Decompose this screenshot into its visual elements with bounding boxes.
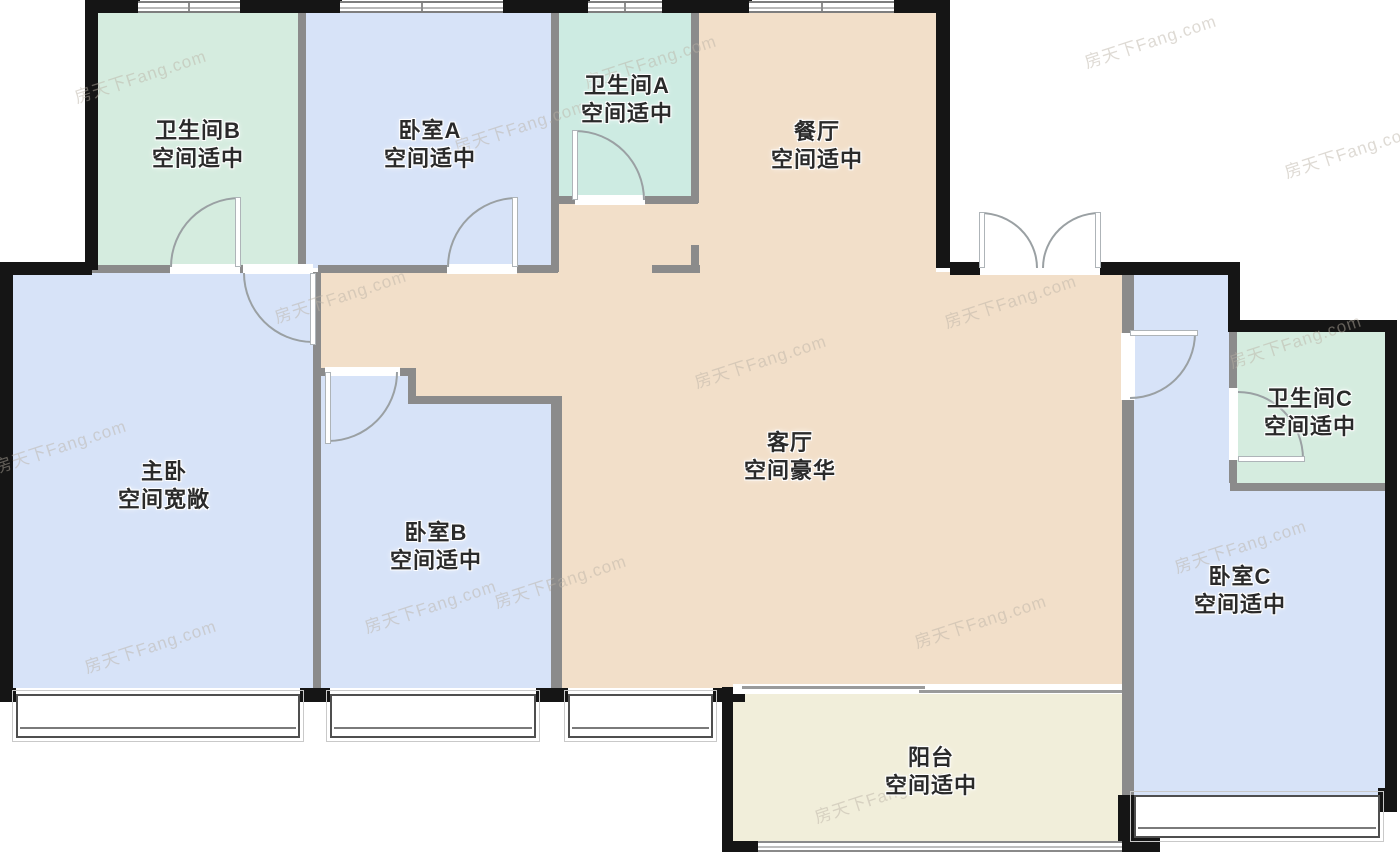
master-bedroom-label: 主卧空间宽敞 [118, 458, 210, 514]
master-bedroom-label-line1: 主卧 [118, 458, 210, 486]
floor-plan: 房天下Fang.com房天下Fang.com房天下Fang.com房天下Fang… [0, 0, 1400, 857]
balcony-slider-panel-right [919, 690, 1122, 693]
interior-wall [318, 265, 447, 273]
exterior-wall [722, 841, 758, 852]
bathroom-b-label-line1: 卫生间B [152, 117, 244, 145]
dining-window [749, 1, 894, 13]
interior-wall [691, 245, 699, 272]
bedroom-c-label-line1: 卧室C [1194, 563, 1286, 591]
bedroom-b-label: 卧室B空间适中 [390, 519, 482, 575]
interior-wall [551, 396, 562, 690]
window-tick [188, 3, 190, 11]
exterior-wall [85, 0, 140, 13]
window-tick [624, 3, 626, 11]
living-room-label-line1: 客厅 [744, 429, 836, 457]
master-bedroom-window [16, 694, 300, 738]
window-sash-line [334, 727, 532, 729]
bathroom-b-door-leaf [235, 197, 241, 267]
bathroom-a-label: 卫生间A空间适中 [581, 72, 673, 128]
interior-wall [691, 10, 699, 203]
balcony-label-line1: 阳台 [885, 744, 977, 772]
dining-room-label-line2: 空间适中 [771, 146, 863, 174]
watermark: 房天下Fang.com [1281, 117, 1400, 183]
bathroom-a-door-leaf [572, 130, 578, 200]
exterior-wall [950, 262, 980, 275]
bedroom-c-label-line2: 空间适中 [1194, 591, 1286, 619]
window-sash-line [572, 727, 709, 729]
window-tick [421, 3, 423, 11]
bedroom-b-window [330, 694, 536, 738]
exterior-wall [1378, 788, 1397, 812]
interior-wall [408, 396, 558, 404]
interior-wall [92, 265, 170, 273]
balcony-label: 阳台空间适中 [885, 744, 977, 800]
bathroom-c-door-threshold [1229, 388, 1238, 460]
bathroom-b-label: 卫生间B空间适中 [152, 117, 244, 173]
exterior-wall [1100, 262, 1240, 275]
bathroom-a-label-line1: 卫生间A [581, 72, 673, 100]
living-room-label-line2: 空间豪华 [744, 457, 836, 485]
exterior-wall [0, 688, 16, 702]
bedroom-b-label-line2: 空间适中 [390, 547, 482, 575]
bathroom-b-window [138, 1, 240, 13]
bedroom-a-label: 卧室A空间适中 [384, 117, 476, 173]
bathroom-c-label: 卫生间C空间适中 [1264, 385, 1356, 441]
window-tick [821, 3, 823, 11]
hall-window [568, 694, 713, 738]
master-bedroom-door-leaf [310, 273, 316, 345]
entry-door-right-leaf [1095, 212, 1101, 268]
exterior-wall [0, 262, 13, 702]
bathroom-c-door-leaf [1238, 456, 1305, 462]
interior-wall [1122, 275, 1134, 333]
bedroom-c-door-leaf [1130, 330, 1198, 336]
master-bedroom-label-line2: 空间宽敞 [118, 486, 210, 514]
bathroom-a-window [588, 1, 662, 13]
exterior-wall [300, 688, 330, 702]
living-room-label: 客厅空间豪华 [744, 429, 836, 485]
interior-wall [298, 10, 306, 272]
interior-wall [1229, 332, 1237, 388]
bathroom-c-label-line2: 空间适中 [1264, 413, 1356, 441]
balcony-railing [758, 841, 1122, 852]
bedroom-b-door-leaf [325, 372, 331, 444]
bedroom-b-label-line1: 卧室B [390, 519, 482, 547]
window-sash-line [20, 727, 296, 729]
window-sash-line [1138, 827, 1376, 829]
interior-wall [408, 368, 416, 403]
bedroom-a-door-leaf [512, 197, 518, 267]
exterior-wall [1385, 320, 1397, 812]
interior-wall [551, 10, 559, 272]
entry-door-right-swing [1042, 212, 1100, 268]
bedroom-c-window [1134, 795, 1380, 838]
hall-top-floor [558, 200, 698, 275]
railing-line [758, 846, 1122, 848]
bedroom-a-window [340, 1, 503, 13]
balcony-label-line2: 空间适中 [885, 772, 977, 800]
entry-door-left-leaf [979, 212, 985, 268]
exterior-wall [936, 0, 950, 268]
exterior-wall [240, 0, 342, 13]
balcony-slider-panel-left [742, 686, 925, 689]
living-floor [558, 272, 1122, 688]
exterior-wall [0, 262, 92, 275]
bedroom-a-label-line2: 空间适中 [384, 145, 476, 173]
exterior-wall [85, 0, 98, 270]
watermark: 房天下Fang.com [1081, 7, 1220, 73]
entry-door-left-swing [980, 212, 1038, 268]
exterior-wall [503, 0, 590, 13]
bathroom-c-label-line1: 卫生间C [1264, 385, 1356, 413]
bedroom-c-floor-2 [1230, 490, 1385, 795]
bedroom-a-label-line1: 卧室A [384, 117, 476, 145]
bedroom-c-label: 卧室C空间适中 [1194, 563, 1286, 619]
exterior-wall [1228, 320, 1397, 332]
dining-room-label-line1: 餐厅 [771, 118, 863, 146]
interior-wall [1122, 400, 1134, 843]
bathroom-b-label-line2: 空间适中 [152, 145, 244, 173]
dining-room-label: 餐厅空间适中 [771, 118, 863, 174]
exterior-wall [662, 0, 752, 13]
exterior-wall [722, 687, 733, 852]
bathroom-a-label-line2: 空间适中 [581, 100, 673, 128]
interior-wall [1229, 460, 1237, 483]
exterior-wall [536, 688, 568, 702]
interior-wall [1230, 483, 1385, 491]
